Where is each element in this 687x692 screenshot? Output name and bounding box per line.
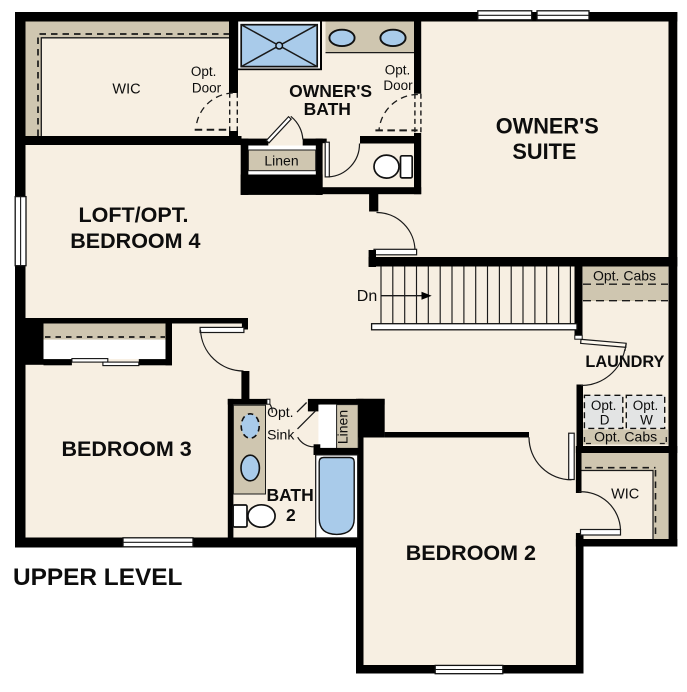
svg-text:Opt.: Opt. (385, 63, 411, 78)
svg-text:SUITE: SUITE (512, 139, 576, 164)
svg-text:Opt. Cabs: Opt. Cabs (594, 429, 657, 445)
svg-text:Opt.: Opt. (633, 398, 659, 413)
svg-text:OWNER'S: OWNER'S (289, 81, 372, 101)
svg-text:D: D (600, 413, 610, 428)
svg-text:Door: Door (192, 81, 222, 96)
svg-text:Opt. Cabs: Opt. Cabs (593, 267, 656, 283)
svg-text:WIC: WIC (112, 82, 140, 98)
svg-text:BEDROOM 3: BEDROOM 3 (61, 437, 191, 461)
svg-text:LOFT/OPT.: LOFT/OPT. (79, 203, 189, 227)
svg-text:BEDROOM 4: BEDROOM 4 (70, 229, 200, 253)
svg-text:LAUNDRY: LAUNDRY (585, 353, 664, 371)
svg-text:BATH: BATH (304, 99, 351, 119)
svg-text:BEDROOM 2: BEDROOM 2 (406, 541, 536, 565)
svg-text:Opt.: Opt. (591, 398, 617, 413)
svg-text:W: W (640, 413, 653, 428)
svg-text:UPPER LEVEL: UPPER LEVEL (13, 564, 183, 591)
svg-text:Sink: Sink (267, 427, 295, 443)
svg-text:Linen: Linen (334, 410, 350, 444)
svg-text:Opt.: Opt. (191, 64, 217, 79)
svg-text:Linen: Linen (264, 153, 298, 169)
svg-text:BATH: BATH (266, 485, 313, 505)
svg-text:Dn: Dn (357, 288, 377, 305)
svg-text:WIC: WIC (611, 487, 639, 503)
svg-text:OWNER'S: OWNER'S (496, 114, 599, 139)
svg-text:Door: Door (383, 78, 413, 93)
svg-text:2: 2 (286, 505, 296, 525)
